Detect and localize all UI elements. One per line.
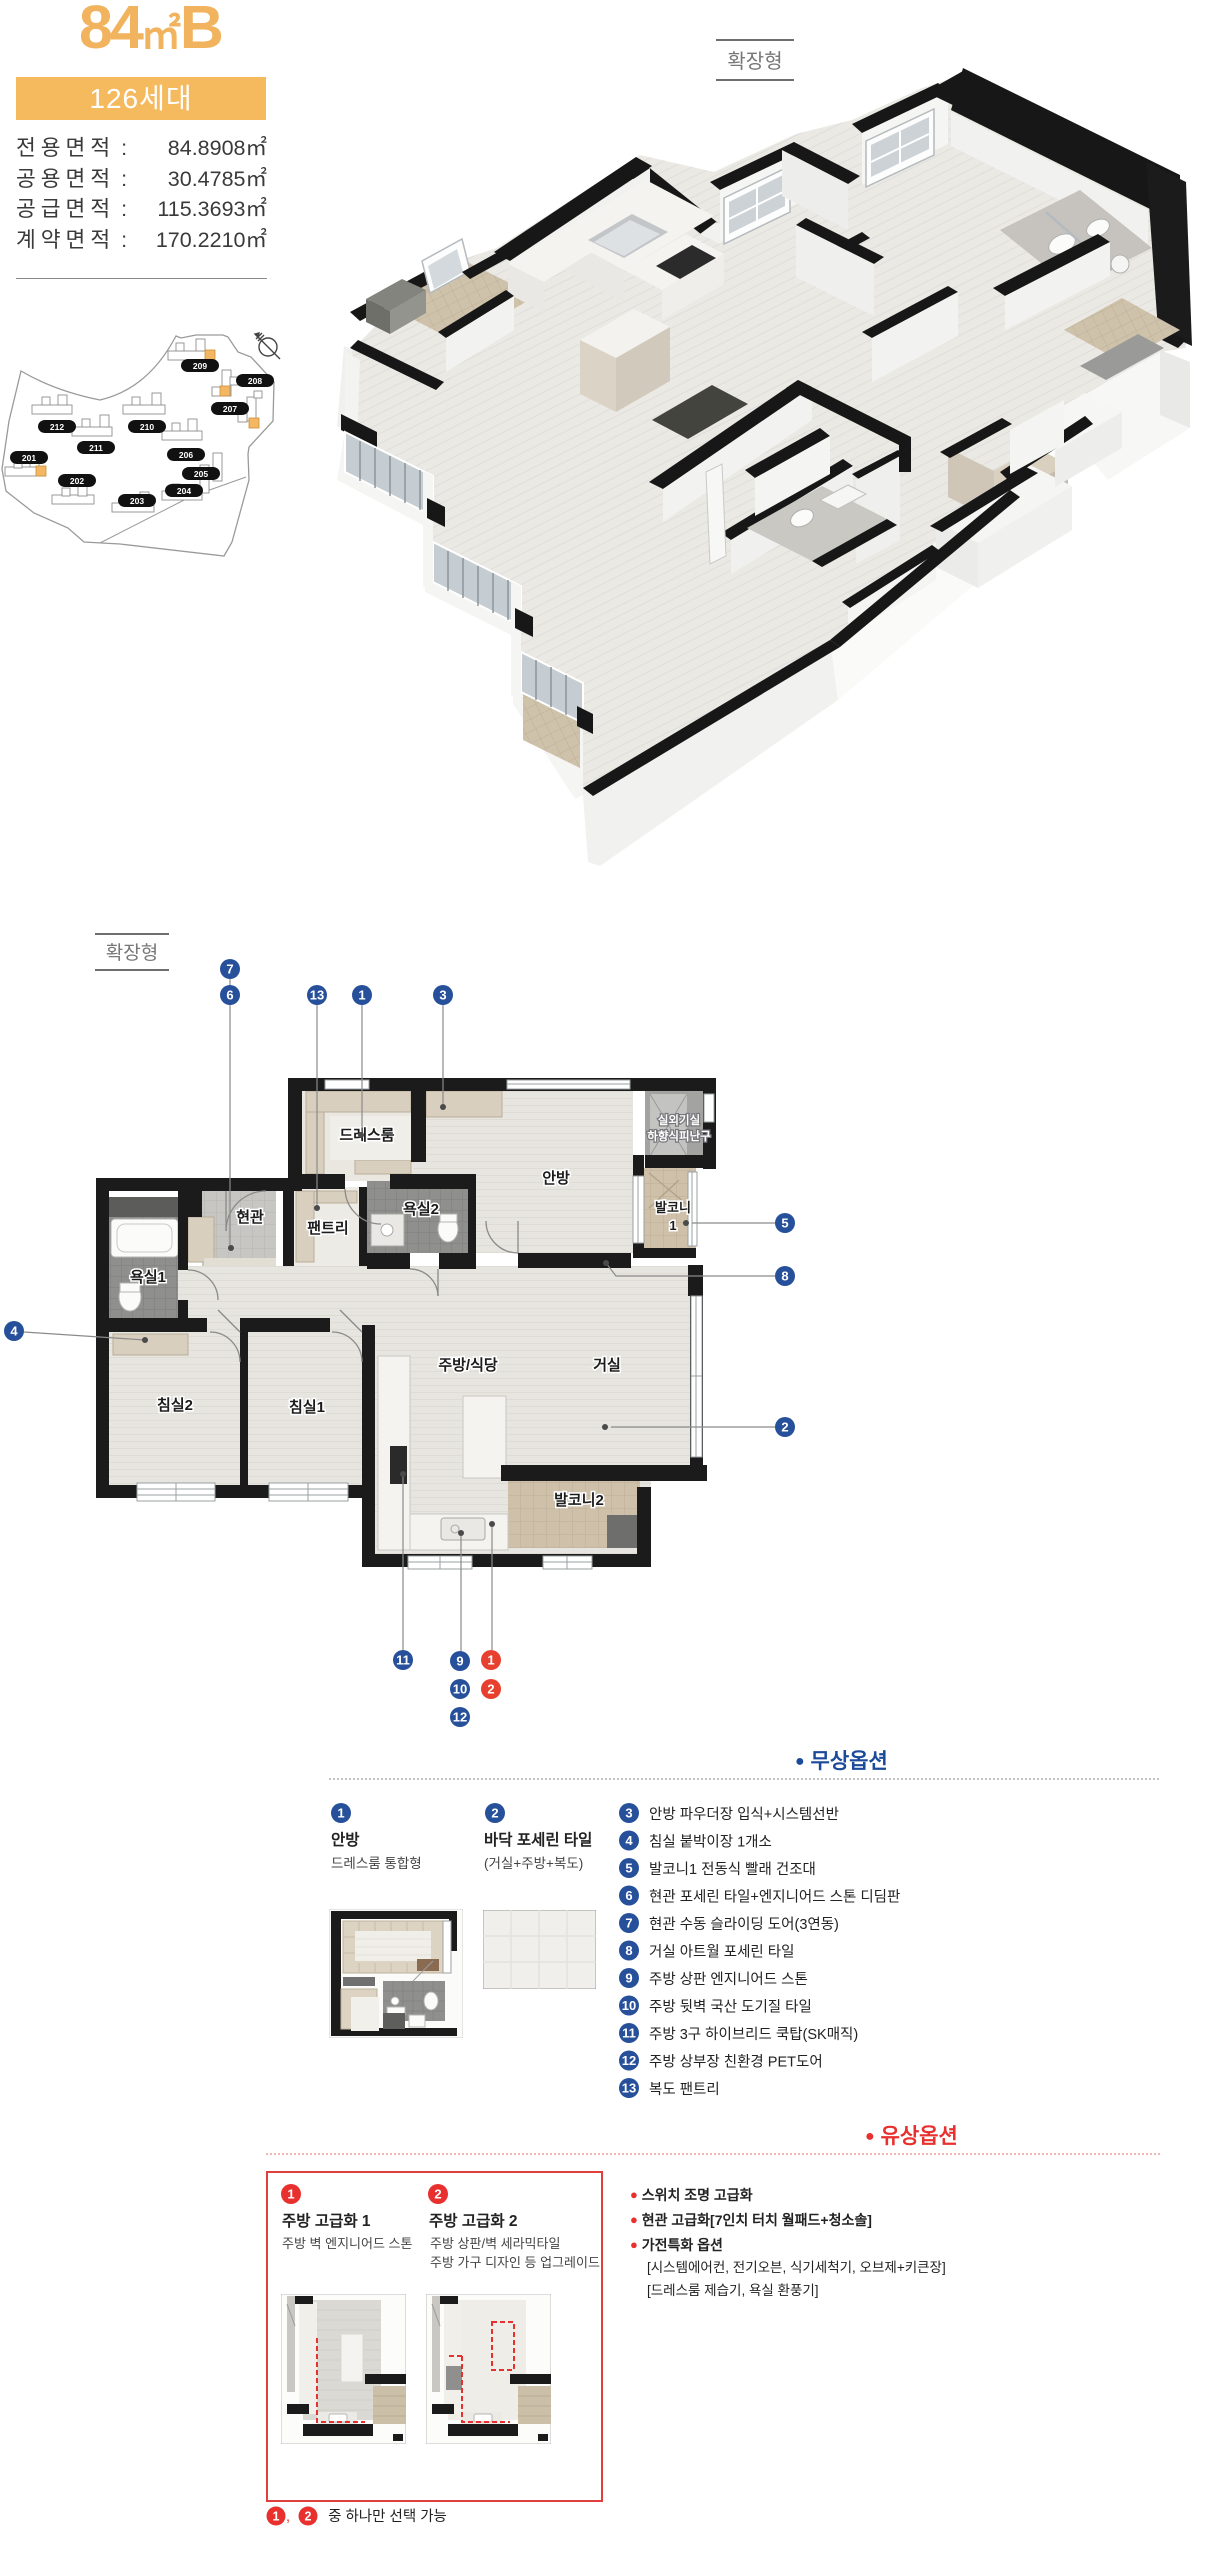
svg-text:현관 수동 슬라이딩 도어(3연동): 현관 수동 슬라이딩 도어(3연동): [649, 1916, 839, 1933]
svg-text:212: 212: [50, 422, 64, 432]
svg-text:주방 3구 하이브리드 쿡탑(SK매직): 주방 3구 하이브리드 쿡탑(SK매직): [649, 2026, 858, 2043]
svg-text:10: 10: [453, 1682, 467, 1697]
svg-text:욕실2: 욕실2: [403, 1201, 439, 1218]
svg-text:거실: 거실: [593, 1357, 621, 1374]
svg-text:211: 211: [89, 443, 103, 453]
svg-text:팬트리: 팬트리: [307, 1220, 348, 1237]
svg-text:206: 206: [179, 450, 193, 460]
svg-text:207: 207: [223, 404, 237, 414]
svg-text:하향식피난구: 하향식피난구: [647, 1129, 711, 1143]
svg-text:주방/식당: 주방/식당: [438, 1356, 498, 1374]
svg-text:9: 9: [456, 1654, 463, 1669]
svg-text:10: 10: [622, 1998, 636, 2013]
svg-text:5: 5: [781, 1216, 788, 1231]
svg-text:205: 205: [194, 469, 208, 479]
svg-text:210: 210: [140, 422, 154, 432]
svg-text:209: 209: [193, 361, 207, 371]
svg-text:203: 203: [130, 496, 144, 506]
svg-text:현관 포세린 타일+엔지니어드 스톤 디딤판: 현관 포세린 타일+엔지니어드 스톤 디딤판: [649, 1889, 900, 1906]
svg-text:5: 5: [625, 1861, 632, 1876]
svg-text:주방 뒷벽 국산 도기질 타일: 주방 뒷벽 국산 도기질 타일: [649, 1999, 812, 2016]
svg-text:7: 7: [625, 1916, 632, 1931]
svg-text:2: 2: [434, 2187, 441, 2202]
svg-text:11: 11: [396, 1653, 410, 1668]
svg-text:3: 3: [625, 1806, 632, 1821]
svg-text:12: 12: [622, 2053, 636, 2068]
svg-text:4: 4: [625, 1833, 633, 1848]
svg-text:1: 1: [337, 1806, 344, 1821]
svg-text:1: 1: [358, 988, 365, 1003]
svg-text:침실1: 침실1: [289, 1399, 325, 1416]
svg-text:1: 1: [487, 1653, 494, 1668]
svg-text:2: 2: [305, 2510, 312, 2524]
svg-text:주방 상판 엔지니어드 스톤: 주방 상판 엔지니어드 스톤: [649, 1971, 808, 1988]
svg-text:204: 204: [177, 486, 191, 496]
svg-text:안방 파우더장 입식+시스템선반: 안방 파우더장 입식+시스템선반: [649, 1806, 839, 1823]
svg-text:3: 3: [439, 988, 446, 1003]
svg-text:13: 13: [622, 2081, 636, 2096]
svg-text:12: 12: [453, 1710, 467, 1725]
svg-text:11: 11: [622, 2026, 636, 2041]
svg-text:201: 201: [22, 453, 36, 463]
svg-text:13: 13: [310, 988, 324, 1003]
svg-text:1: 1: [287, 2187, 294, 2202]
svg-text:2: 2: [491, 1806, 498, 1821]
svg-text:안방: 안방: [542, 1169, 570, 1187]
svg-text:발코니2: 발코니2: [554, 1492, 604, 1509]
svg-text:208: 208: [248, 376, 262, 386]
svg-text:1: 1: [669, 1218, 676, 1233]
svg-text:복도 팬트리: 복도 팬트리: [649, 2081, 720, 2098]
svg-text:1: 1: [273, 2510, 280, 2524]
svg-text:202: 202: [70, 476, 84, 486]
svg-text:침실2: 침실2: [157, 1397, 193, 1414]
svg-text:거실 아트월 포세린 타일: 거실 아트월 포세린 타일: [649, 1944, 795, 1961]
svg-text:6: 6: [226, 988, 233, 1003]
svg-text:주방 상부장 친환경 PET도어: 주방 상부장 친환경 PET도어: [649, 2054, 823, 2071]
svg-text:2: 2: [781, 1420, 788, 1435]
svg-text:실외기실: 실외기실: [658, 1113, 700, 1127]
svg-text:욕실1: 욕실1: [130, 1269, 166, 1286]
svg-text:6: 6: [625, 1888, 632, 1903]
svg-text:8: 8: [781, 1269, 788, 1284]
svg-text:2: 2: [487, 1682, 494, 1697]
svg-text:7: 7: [226, 962, 233, 977]
svg-text:9: 9: [625, 1971, 632, 1986]
svg-text:침실 붙박이장 1개소: 침실 붙박이장 1개소: [649, 1834, 772, 1851]
svg-text:현관: 현관: [236, 1209, 264, 1226]
svg-text:8: 8: [625, 1943, 632, 1958]
svg-text:드레스룸: 드레스룸: [339, 1127, 394, 1144]
svg-text:발코니1 전동식 빨래 건조대: 발코니1 전동식 빨래 건조대: [649, 1861, 816, 1878]
svg-text:발코니: 발코니: [655, 1200, 691, 1215]
svg-text:4: 4: [10, 1324, 18, 1339]
